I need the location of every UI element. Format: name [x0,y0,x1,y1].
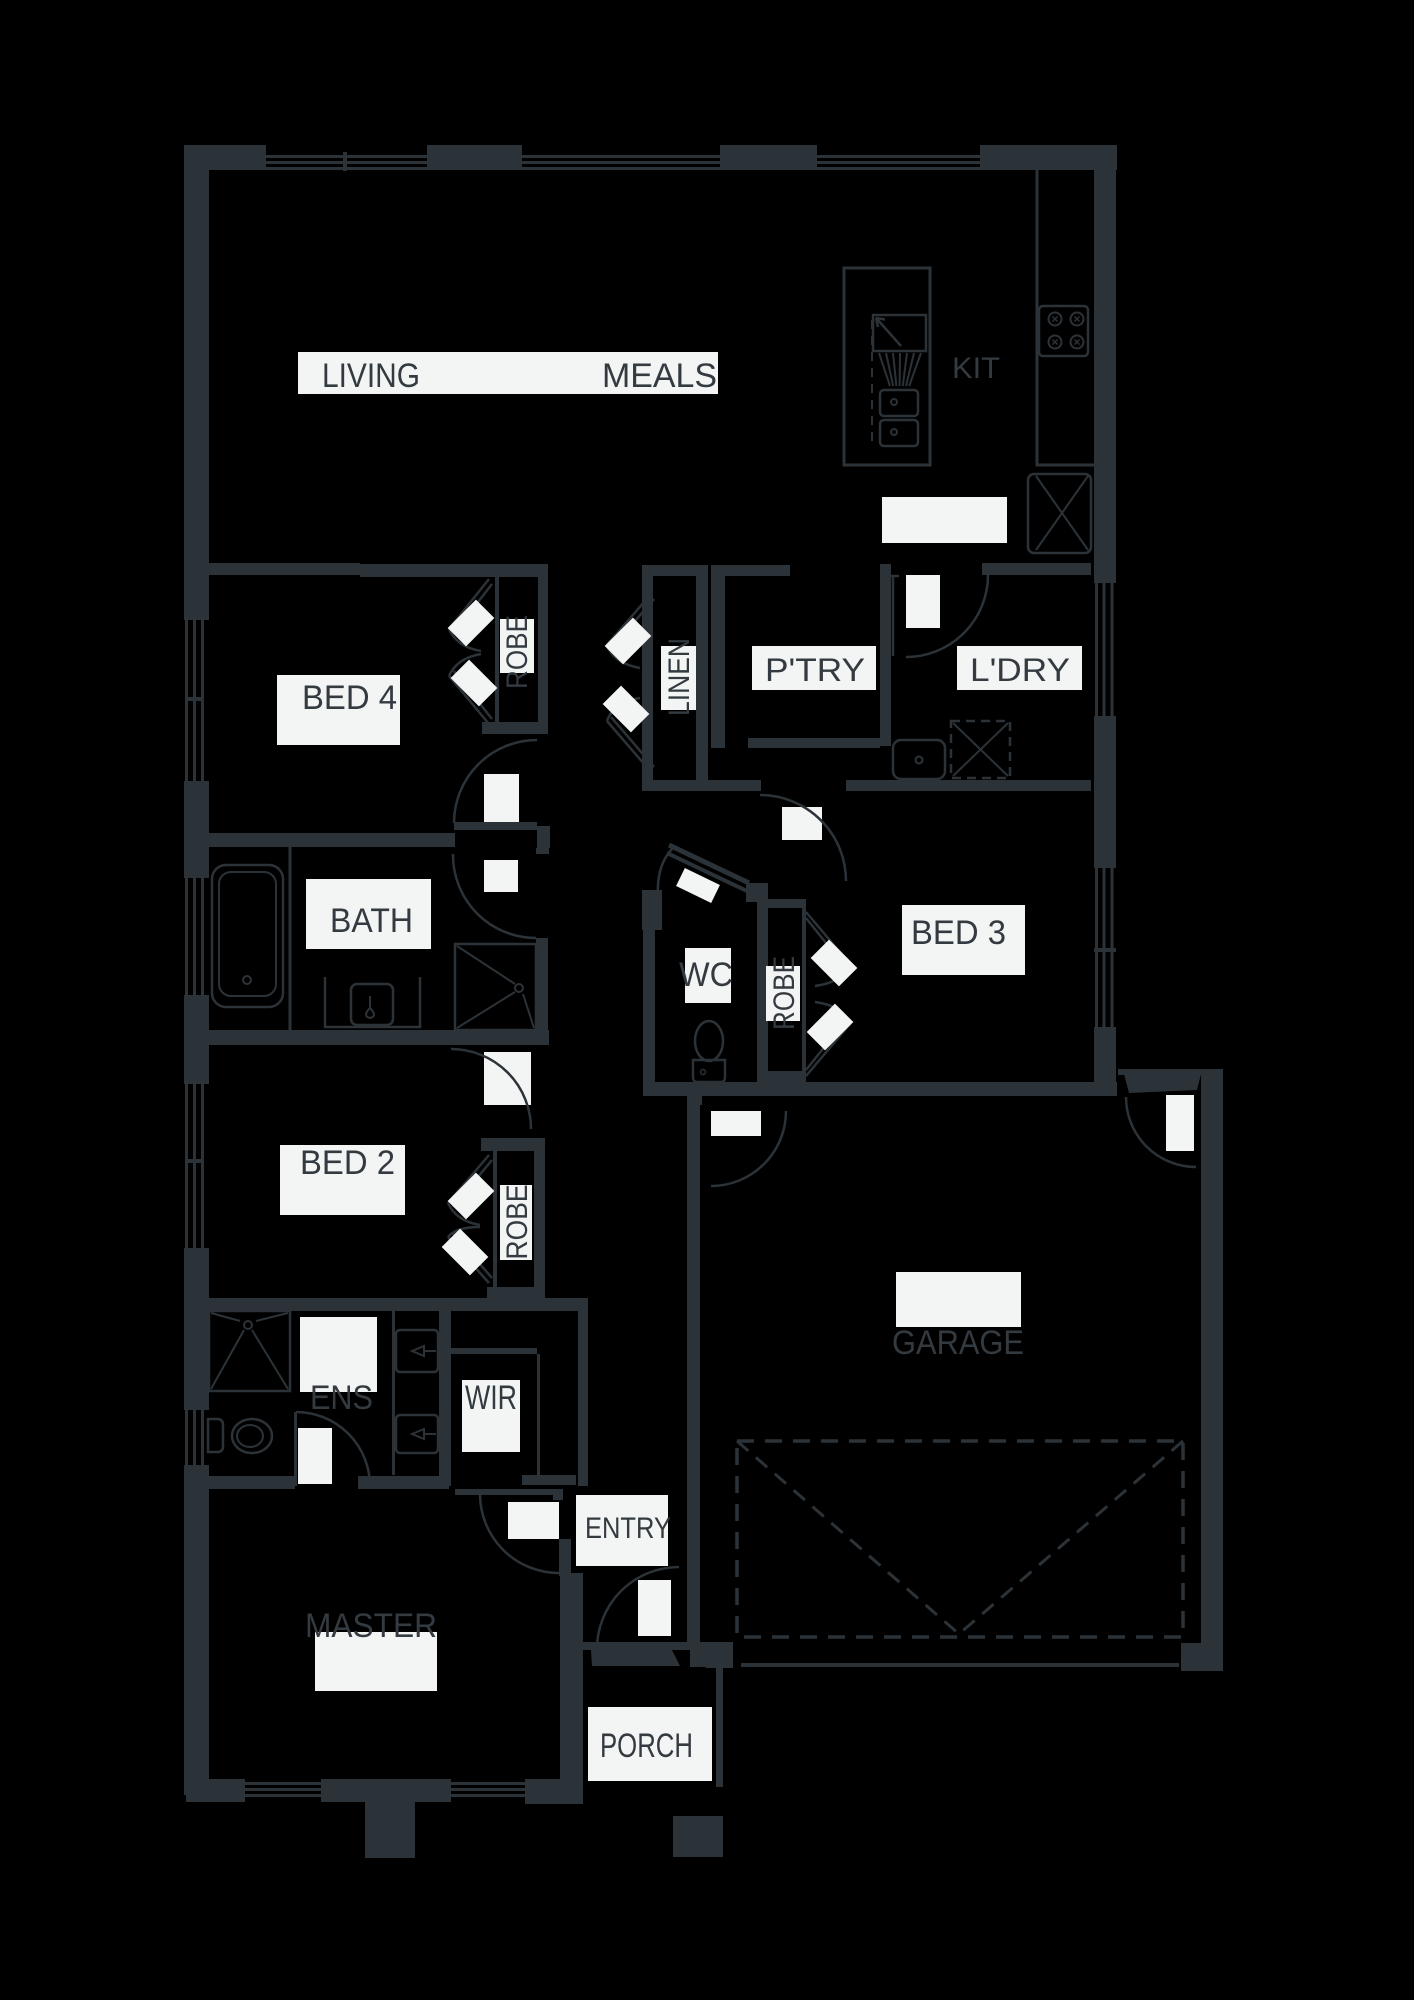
svg-text:LIVING: LIVING [322,357,420,395]
svg-text:BED 4: BED 4 [302,679,397,717]
svg-text:ENTRY: ENTRY [585,1512,671,1545]
svg-text:MASTER: MASTER [305,1607,437,1645]
svg-text:LINEN: LINEN [663,638,696,716]
svg-text:BED 2: BED 2 [300,1144,395,1182]
svg-text:ROBE: ROBE [768,956,801,1030]
svg-text:L'DRY: L'DRY [970,652,1070,688]
svg-text:WIR: WIR [465,1379,517,1417]
svg-text:BED 3: BED 3 [911,914,1006,952]
svg-text:ENS: ENS [310,1379,373,1417]
svg-text:BATH: BATH [330,902,413,940]
svg-text:PORCH: PORCH [600,1727,693,1765]
svg-text:ROBE: ROBE [501,615,534,689]
svg-text:MEALS: MEALS [602,357,717,395]
svg-text:P'TRY: P'TRY [765,652,865,688]
svg-text:KIT: KIT [952,352,1000,385]
svg-text:ROBE: ROBE [501,1185,534,1260]
svg-text:WC: WC [679,956,733,994]
svg-text:GARAGE: GARAGE [892,1324,1024,1362]
